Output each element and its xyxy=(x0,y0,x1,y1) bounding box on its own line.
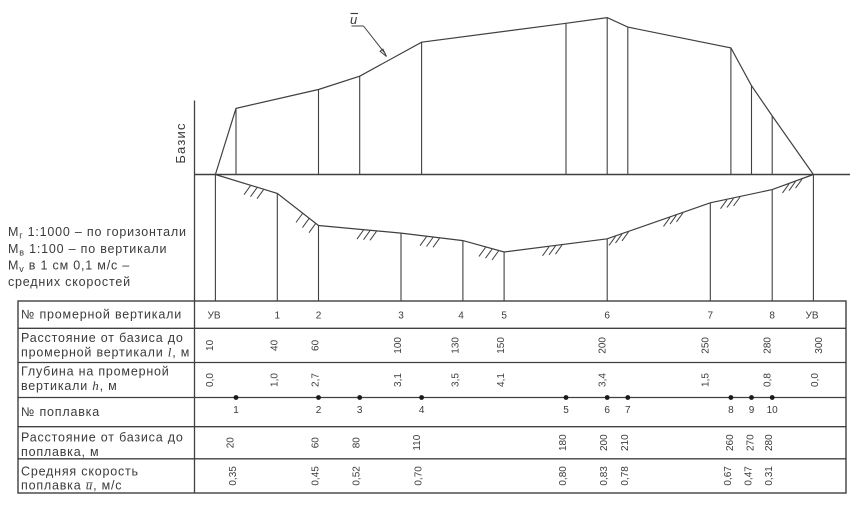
svg-text:Средняя скорость: Средняя скорость xyxy=(21,465,139,479)
svg-text:110: 110 xyxy=(412,434,423,450)
svg-text:0,52: 0,52 xyxy=(352,466,363,486)
svg-text:10: 10 xyxy=(767,405,779,416)
svg-text:0,0: 0,0 xyxy=(205,373,216,387)
svg-text:8: 8 xyxy=(728,405,734,416)
svg-text:0,31: 0,31 xyxy=(764,466,775,486)
svg-text:0,45: 0,45 xyxy=(311,466,322,486)
svg-text:250: 250 xyxy=(701,337,712,354)
svg-text:вертикали h, м: вертикали h, м xyxy=(21,378,118,393)
svg-text:Мv в 1 см 0,1 м/с –: Мv в 1 см 0,1 м/с – xyxy=(8,259,130,275)
svg-text:0,80: 0,80 xyxy=(558,466,569,486)
svg-text:0,35: 0,35 xyxy=(228,466,239,486)
svg-text:0,78: 0,78 xyxy=(620,466,631,486)
svg-text:2: 2 xyxy=(316,311,322,322)
svg-text:200: 200 xyxy=(598,337,609,354)
svg-text:80: 80 xyxy=(352,437,363,449)
svg-text:УВ: УВ xyxy=(207,311,220,322)
svg-text:1,0: 1,0 xyxy=(269,373,280,387)
svg-text:0,8: 0,8 xyxy=(763,373,774,387)
svg-text:поплавка, м: поплавка, м xyxy=(21,445,99,459)
svg-text:7: 7 xyxy=(708,311,714,322)
svg-text:3,5: 3,5 xyxy=(451,373,462,387)
svg-text:Глубина на промерной: Глубина на промерной xyxy=(21,365,170,379)
svg-text:300: 300 xyxy=(814,337,825,354)
svg-text:УВ: УВ xyxy=(805,311,818,322)
svg-text:Базис: Базис xyxy=(173,122,188,163)
svg-text:6: 6 xyxy=(604,311,610,322)
svg-text:7: 7 xyxy=(625,405,631,416)
svg-text:0,0: 0,0 xyxy=(810,373,821,387)
svg-text:260: 260 xyxy=(725,434,736,451)
svg-text:Расстояние от базиса до: Расстояние от базиса до xyxy=(21,431,184,445)
svg-text:4,1: 4,1 xyxy=(496,373,507,387)
svg-text:4: 4 xyxy=(458,311,464,322)
svg-text:3: 3 xyxy=(357,405,363,416)
svg-text:1,5: 1,5 xyxy=(701,373,712,387)
svg-text:Расстояние от базиса до: Расстояние от базиса до xyxy=(21,331,184,345)
svg-text:60: 60 xyxy=(311,437,322,449)
svg-text:10: 10 xyxy=(205,339,216,351)
svg-text:280: 280 xyxy=(763,337,774,354)
svg-text:средних скоростей: средних скоростей xyxy=(8,275,131,289)
svg-text:100: 100 xyxy=(393,337,404,354)
svg-text:4: 4 xyxy=(419,405,425,416)
svg-text:150: 150 xyxy=(496,337,507,354)
svg-text:0,70: 0,70 xyxy=(414,466,425,486)
svg-text:3,1: 3,1 xyxy=(393,373,404,387)
svg-text:9: 9 xyxy=(749,405,755,416)
svg-text:промерной вертикали l, м: промерной вертикали l, м xyxy=(21,345,190,360)
svg-text:2: 2 xyxy=(316,405,322,416)
svg-text:280: 280 xyxy=(764,434,775,451)
svg-text:6: 6 xyxy=(604,405,610,416)
svg-text:0,83: 0,83 xyxy=(599,466,610,486)
svg-text:200: 200 xyxy=(599,434,610,451)
svg-text:№ промерной вертикали: № промерной вертикали xyxy=(21,308,182,322)
svg-text:5: 5 xyxy=(501,311,507,322)
svg-text:2,7: 2,7 xyxy=(311,373,322,387)
svg-text:0,67: 0,67 xyxy=(723,466,734,486)
svg-text:Мг 1:1000 – по горизонтали: Мг 1:1000 – по горизонтали xyxy=(8,225,187,241)
svg-text:5: 5 xyxy=(563,405,569,416)
svg-text:3,4: 3,4 xyxy=(598,373,609,387)
svg-text:u: u xyxy=(350,12,357,27)
svg-text:8: 8 xyxy=(769,311,775,322)
svg-text:270: 270 xyxy=(746,434,757,451)
svg-text:60: 60 xyxy=(311,339,322,351)
svg-text:1: 1 xyxy=(233,405,239,416)
svg-text:поплавка u̅, м/с: поплавка u̅, м/с xyxy=(21,478,122,493)
svg-text:130: 130 xyxy=(451,337,462,354)
svg-text:№ поплавка: № поплавка xyxy=(21,405,100,419)
svg-text:Мв 1:100 – по вертикали: Мв 1:100 – по вертикали xyxy=(8,242,167,258)
svg-text:180: 180 xyxy=(558,434,569,451)
svg-text:1: 1 xyxy=(275,311,281,322)
svg-text:0,47: 0,47 xyxy=(744,466,755,486)
svg-text:210: 210 xyxy=(620,434,631,451)
svg-text:3: 3 xyxy=(398,311,404,322)
svg-text:20: 20 xyxy=(226,437,237,449)
svg-text:40: 40 xyxy=(269,339,280,351)
